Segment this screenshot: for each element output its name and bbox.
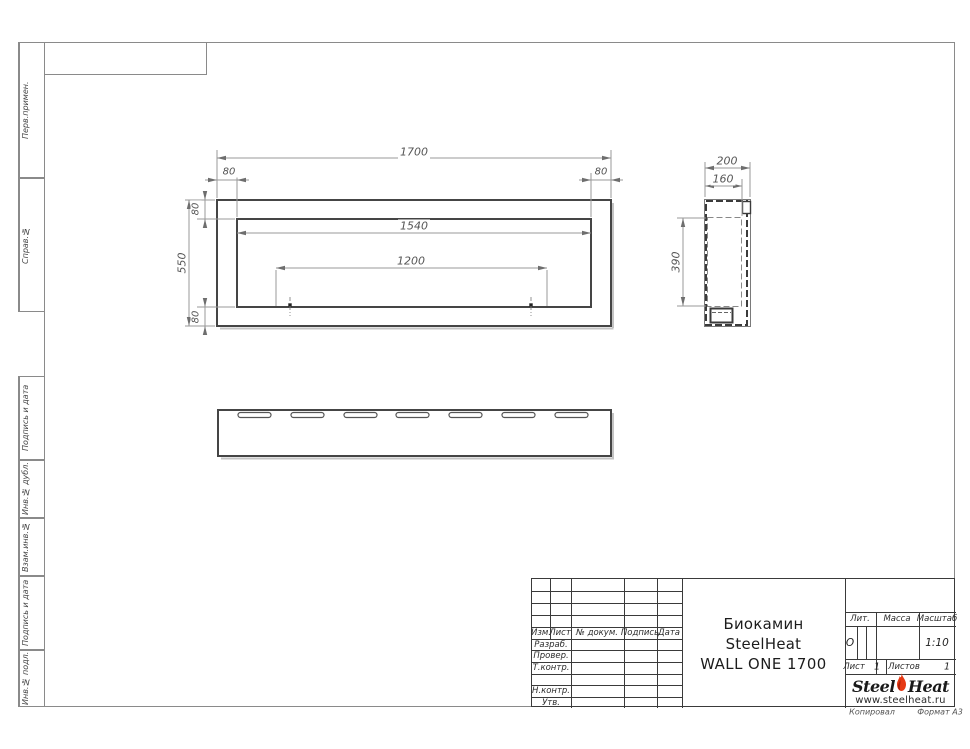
logo-url: www.steelheat.ru — [855, 695, 945, 706]
dim-top-offset: 80 — [191, 201, 202, 218]
tb-line — [866, 626, 867, 659]
tb-sheet-value: 1 — [874, 661, 880, 672]
logo-wordmark: Steel Heat — [852, 677, 949, 696]
logo-word-heat: Heat — [908, 677, 949, 696]
tb-row-utv: Утв. — [542, 698, 560, 708]
tb-row-tkontr: Т.контр. — [533, 663, 570, 673]
bottom-view — [218, 410, 614, 459]
tb-line — [532, 591, 682, 592]
title-block: Изм. Лист № докум. Подпись Дата Разраб. … — [531, 578, 955, 707]
tb-col-doc: № докум. — [576, 628, 618, 638]
tb-col-sign: Подпись — [621, 628, 659, 638]
dim-overall-depth: 200 — [715, 155, 740, 168]
vent-slots — [238, 413, 588, 418]
dim-opening-width: 1540 — [398, 220, 430, 233]
tb-line — [532, 615, 682, 616]
tb-mass-label: Масса — [883, 614, 910, 624]
steelheat-logo: Steel Heat www.steelheat.ru — [845, 674, 956, 708]
dim-left-offset: 80 — [221, 167, 238, 178]
tb-line — [682, 579, 683, 708]
dim-right-offset: 80 — [593, 167, 610, 178]
dimension-arrows — [187, 156, 750, 335]
tb-line — [845, 659, 956, 660]
tb-line — [532, 674, 682, 675]
tb-col-izm: Изм. — [531, 628, 551, 638]
dim-inner-depth: 160 — [711, 173, 736, 186]
tb-sheets-value: 1 — [944, 661, 950, 672]
drawing-sheet: Перв.примен. Справ.№ Подпись и дата Инв.… — [0, 0, 970, 749]
tb-title-line1: Биокамин SteelHeat — [685, 614, 841, 654]
tb-col-list: Лист — [549, 628, 571, 638]
tb-line — [624, 579, 625, 708]
tb-scale-label: Масштаб — [917, 614, 957, 624]
tb-col-date: Дата — [658, 628, 680, 638]
tb-line — [845, 612, 956, 613]
side-view — [705, 200, 751, 327]
tb-line — [571, 579, 572, 708]
logo-word-steel: Steel — [852, 677, 895, 696]
flame-icon — [894, 672, 909, 694]
dim-overall-width: 1700 — [398, 146, 430, 159]
dim-inner-height: 390 — [670, 250, 683, 275]
tb-line — [857, 626, 858, 659]
copied-label: Копировал — [849, 708, 895, 717]
tb-title-line2: WALL ONE 1700 — [700, 654, 826, 674]
tb-line — [657, 579, 658, 708]
tb-line — [886, 659, 887, 674]
dim-mount-spacing: 1200 — [395, 255, 427, 268]
tb-sheets-label: Листов — [888, 662, 920, 672]
tb-sheet-label: Лист — [843, 662, 865, 672]
tb-line — [845, 626, 956, 627]
dim-overall-height: 550 — [176, 251, 189, 276]
tb-document-title: Биокамин SteelHeat WALL ONE 1700 — [685, 579, 841, 708]
format-label: Формат А3 — [917, 708, 963, 717]
dim-bottom-offset: 80 — [191, 309, 202, 326]
tb-row-prover: Провер. — [533, 651, 568, 661]
tb-lit-label: Лит. — [850, 614, 870, 624]
tb-row-razrab: Разраб. — [534, 640, 567, 650]
tb-lit-value: О — [846, 637, 854, 649]
tb-line — [532, 603, 682, 604]
tb-scale-value: 1:10 — [925, 637, 949, 649]
tb-row-nkontr: Н.контр. — [532, 686, 570, 696]
